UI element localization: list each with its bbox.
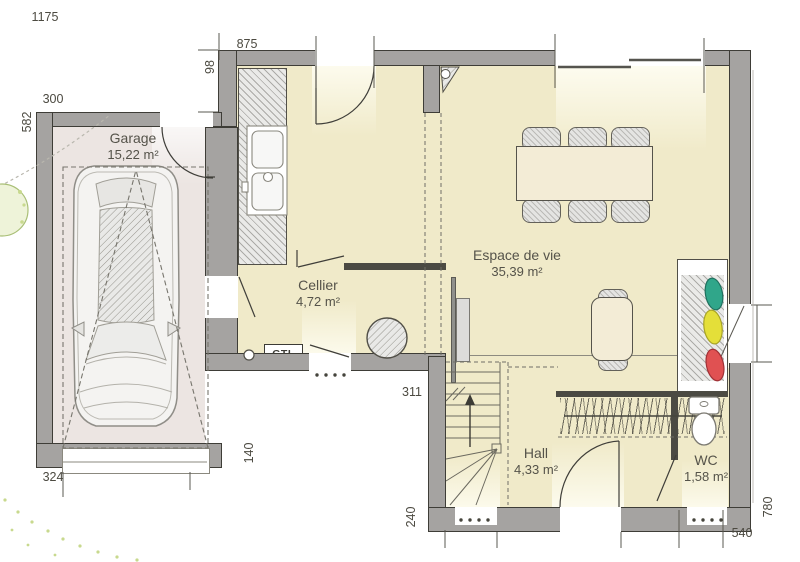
deco-green bbox=[703, 277, 725, 311]
dim-front-top: 875 bbox=[237, 37, 258, 51]
dim-cellier-width: 311 bbox=[402, 385, 422, 399]
plant bbox=[0, 184, 28, 236]
room-label-hall: Hall 4,33 m² bbox=[514, 445, 558, 477]
kitchen-door-arc bbox=[316, 66, 374, 124]
cellier-kitchen-door-leaf bbox=[298, 256, 344, 267]
dim-garage-door: 324 bbox=[43, 470, 64, 484]
toilet bbox=[689, 397, 719, 445]
room-area: 35,39 m² bbox=[473, 264, 561, 279]
room-area: 4,72 m² bbox=[296, 294, 340, 309]
stairs bbox=[446, 362, 501, 505]
water-heater bbox=[367, 318, 407, 358]
room-label-garage: Garage 15,22 m² bbox=[107, 130, 158, 162]
room-label-cellier: Cellier 4,72 m² bbox=[296, 277, 340, 309]
bay-window-glass bbox=[558, 60, 701, 67]
entry-door-arc bbox=[560, 441, 619, 507]
dim-garage-depth: 582 bbox=[20, 112, 34, 133]
room-name: Cellier bbox=[296, 277, 340, 294]
dim-step: 98 bbox=[203, 60, 217, 74]
room-area: 1,58 m² bbox=[684, 469, 728, 484]
kitchen-sink bbox=[242, 126, 287, 215]
wc-door-leaf bbox=[657, 455, 676, 501]
dim-bottom-right: 540 bbox=[732, 526, 753, 540]
room-name: Espace de vie bbox=[473, 247, 561, 264]
dim-stair-side: 240 bbox=[404, 507, 418, 528]
room-name: Hall bbox=[514, 445, 558, 462]
room-area: 4,33 m² bbox=[514, 462, 558, 477]
linework-layer bbox=[0, 0, 800, 562]
cellier-pipe bbox=[244, 350, 254, 360]
room-name: WC bbox=[684, 452, 728, 469]
living-window-swing bbox=[719, 306, 744, 361]
corner-column bbox=[441, 67, 459, 92]
shelf-deco bbox=[702, 277, 727, 383]
garage-cellier-door-leaf bbox=[239, 277, 255, 317]
room-area: 15,22 m² bbox=[107, 147, 158, 162]
dim-garage-width: 300 bbox=[43, 92, 64, 106]
car bbox=[72, 166, 180, 426]
room-label-living: Espace de vie 35,39 m² bbox=[473, 247, 561, 279]
dim-overall-width: 1175 bbox=[32, 10, 59, 24]
room-name: Garage bbox=[107, 130, 158, 147]
dim-right-height: 780 bbox=[761, 497, 775, 518]
cellier-back-door-leaf bbox=[310, 345, 349, 357]
dim-garage-side: 140 bbox=[242, 443, 256, 464]
floor-plan: GTL bbox=[0, 0, 800, 562]
deco-yellow bbox=[702, 309, 725, 345]
room-label-wc: WC 1,58 m² bbox=[684, 452, 728, 484]
door-swings bbox=[162, 66, 676, 507]
